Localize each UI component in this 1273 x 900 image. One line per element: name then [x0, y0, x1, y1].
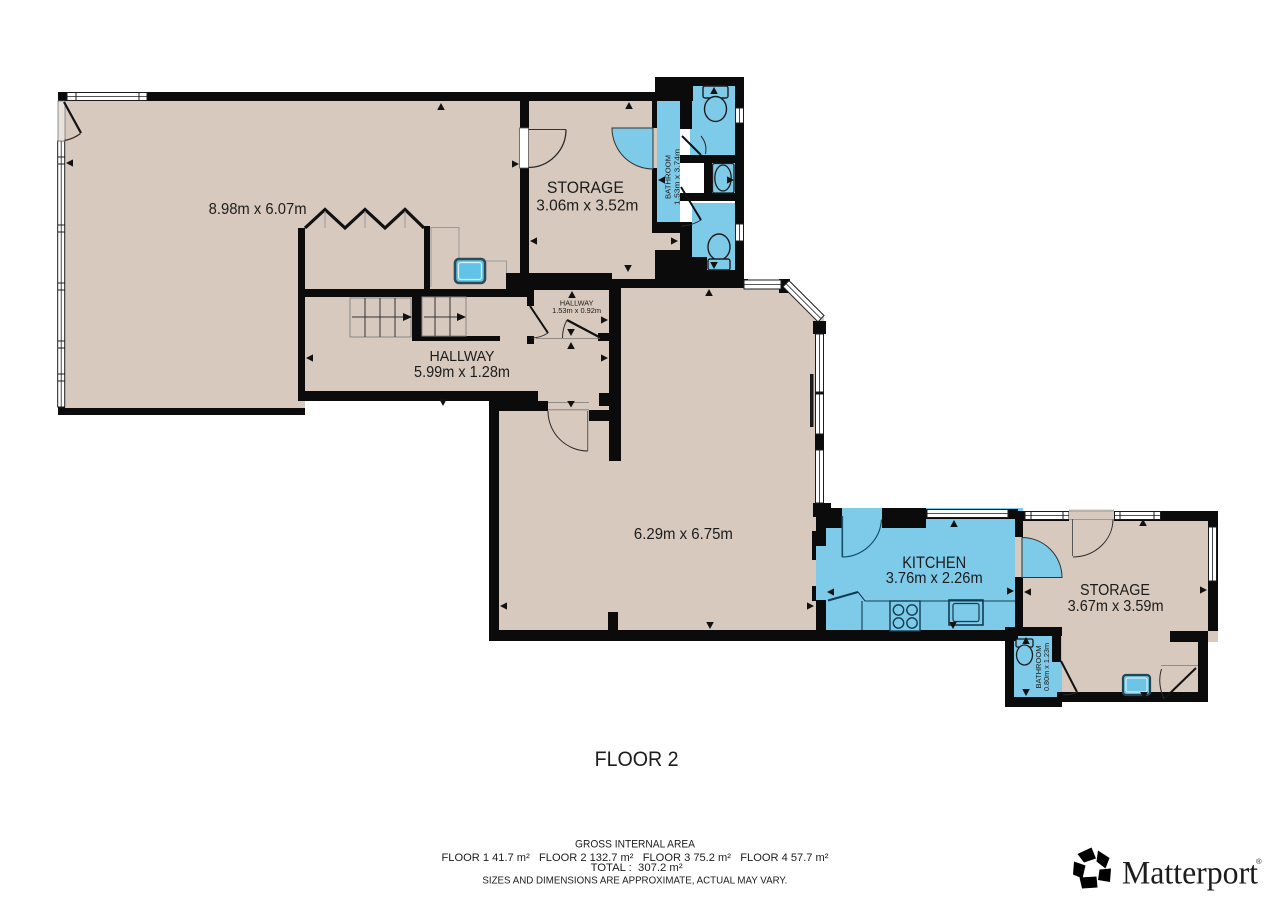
- svg-text:FLOOR 2: FLOOR 2: [595, 748, 679, 771]
- svg-text:BATHROOM: BATHROOM: [664, 155, 673, 199]
- svg-text:TOTAL : 307.2 m²: TOTAL : 307.2 m²: [591, 862, 683, 874]
- svg-text:SIZES AND DIMENSIONS ARE APPRO: SIZES AND DIMENSIONS ARE APPROXIMATE, AC…: [482, 875, 787, 887]
- svg-text:1.53m x 0.92m: 1.53m x 0.92m: [552, 306, 601, 315]
- svg-text:5.99m x 1.28m: 5.99m x 1.28m: [414, 364, 510, 381]
- svg-text:8.98m x 6.07m: 8.98m x 6.07m: [209, 201, 307, 218]
- svg-text:Matterport: Matterport: [1122, 856, 1258, 892]
- svg-text:0.80m x 1.23m: 0.80m x 1.23m: [1042, 643, 1051, 691]
- svg-text:3.67m x 3.59m: 3.67m x 3.59m: [1068, 598, 1164, 615]
- svg-text:6.29m x 6.75m: 6.29m x 6.75m: [634, 526, 733, 543]
- svg-text:STORAGE: STORAGE: [547, 179, 624, 197]
- svg-text:STORAGE: STORAGE: [1080, 582, 1150, 599]
- svg-text:3.76m x 2.26m: 3.76m x 2.26m: [886, 570, 983, 587]
- svg-text:HALLWAY: HALLWAY: [430, 348, 495, 365]
- svg-text:1.53m x 3.74m: 1.53m x 3.74m: [673, 149, 682, 205]
- svg-text:3.06m x 3.52m: 3.06m x 3.52m: [536, 198, 638, 215]
- svg-text:GROSS INTERNAL AREA: GROSS INTERNAL AREA: [575, 839, 696, 851]
- svg-text:®: ®: [1256, 857, 1262, 866]
